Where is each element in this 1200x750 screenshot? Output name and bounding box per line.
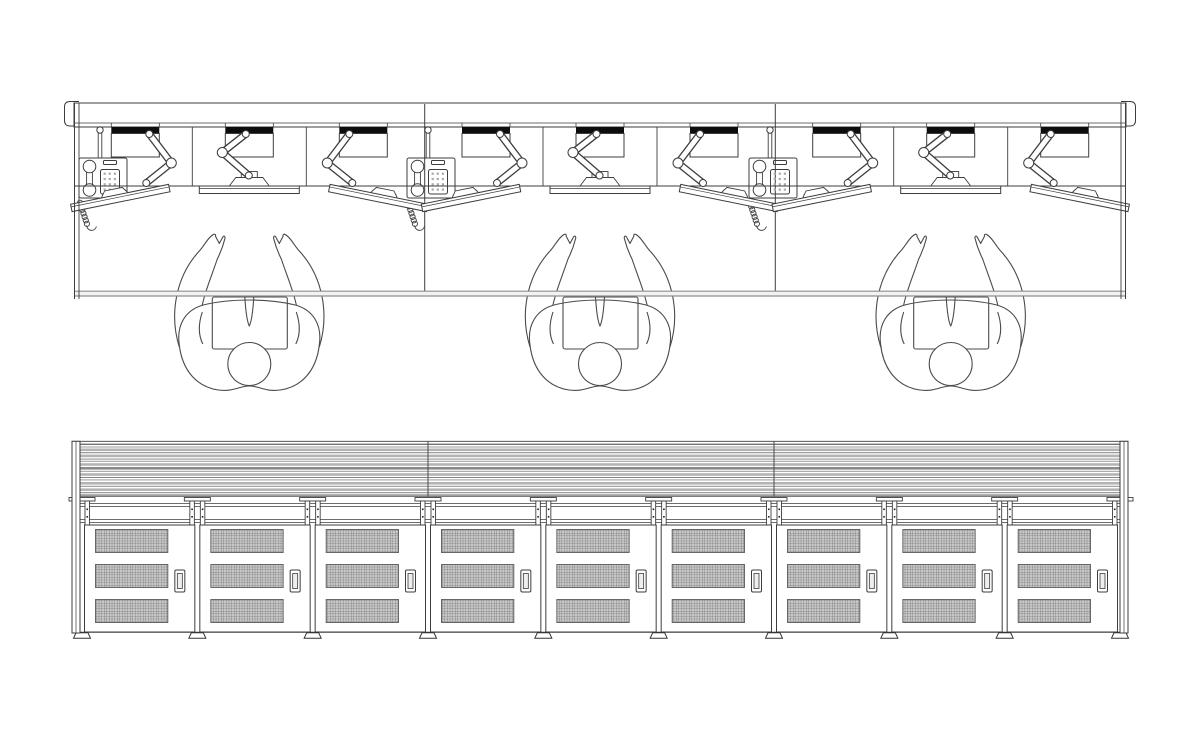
keypad-key xyxy=(784,173,786,175)
keypad-key xyxy=(779,183,781,185)
bracket-post xyxy=(200,501,205,525)
cabinet-door xyxy=(661,525,771,632)
bracket-cap xyxy=(530,498,556,502)
telephone xyxy=(405,127,455,231)
arm-shoulder-joint xyxy=(944,131,951,138)
louver-slat xyxy=(80,477,1120,478)
arm-elbow-joint xyxy=(166,158,176,168)
phone-display-slot xyxy=(104,161,117,165)
monitor-top-view xyxy=(679,178,780,211)
desk-front-edge xyxy=(74,291,1126,296)
vent-grille xyxy=(557,565,629,588)
rail-bracket xyxy=(184,498,210,526)
keypad-key xyxy=(109,183,111,185)
monitor-screen xyxy=(199,186,299,194)
keypad-key xyxy=(432,189,434,191)
vent-grille xyxy=(442,530,514,553)
bracket-screw xyxy=(317,516,319,518)
arm-wrist-joint xyxy=(143,180,150,187)
phone-antenna-tip xyxy=(97,127,103,133)
cabinet-foot xyxy=(996,633,1013,638)
keypad-key xyxy=(437,189,439,191)
arm-shoulder-joint xyxy=(242,131,249,138)
louver-slat xyxy=(80,461,1120,462)
door-handle-slot xyxy=(754,574,759,589)
bracket-screw xyxy=(317,509,319,511)
bracket-screw xyxy=(537,516,539,518)
bracket-post xyxy=(662,501,667,525)
keypad-key xyxy=(109,178,111,180)
keypad-key xyxy=(104,173,106,175)
operator-top-view xyxy=(525,234,674,390)
door-handle-slot xyxy=(408,574,413,589)
cabinet-foot xyxy=(766,633,783,638)
vent-grille xyxy=(672,600,744,623)
louver-slat xyxy=(80,473,1120,476)
bracket-screw xyxy=(191,516,193,518)
cabinet-door xyxy=(892,525,1002,632)
door-handle-slot xyxy=(177,574,182,589)
vent-grille xyxy=(1018,530,1090,553)
louver-panel xyxy=(80,441,1120,496)
bracket-post xyxy=(1113,501,1118,525)
bracket-screw xyxy=(548,516,550,518)
keypad-key xyxy=(437,178,439,180)
keypad-key xyxy=(774,189,776,191)
cabinet-foot xyxy=(304,633,321,638)
bracket-screw xyxy=(653,509,655,511)
bracket-post xyxy=(767,501,772,525)
arm-elbow-joint xyxy=(919,148,929,158)
keypad-key xyxy=(784,189,786,191)
vent-grille xyxy=(788,565,860,588)
bracket-cap xyxy=(992,498,1018,502)
keypad-key xyxy=(437,173,439,175)
vent-grille xyxy=(788,600,860,623)
bracket-post xyxy=(431,501,436,525)
louver-slat xyxy=(80,459,1120,460)
bracket-screw xyxy=(778,516,780,518)
bracket-post xyxy=(190,501,195,525)
louver-slat xyxy=(80,486,1120,487)
bracket-screw xyxy=(768,516,770,518)
vent-grille xyxy=(1018,600,1090,623)
vent-grille xyxy=(96,565,168,588)
vent-grille xyxy=(557,600,629,623)
cabinet-door xyxy=(1007,525,1117,632)
bracket-screw xyxy=(883,509,885,511)
bracket-screw xyxy=(537,509,539,511)
vent-grille xyxy=(672,530,744,553)
bracket-screw xyxy=(548,509,550,511)
bracket-screw xyxy=(422,509,424,511)
keypad-key xyxy=(432,183,434,185)
bracket-screw xyxy=(432,509,434,511)
bracket-screw xyxy=(307,509,309,511)
vent-grille xyxy=(788,530,860,553)
arm-elbow-joint xyxy=(568,148,578,158)
louver-slat xyxy=(80,452,1120,453)
operator-head xyxy=(929,343,972,386)
door-handle-slot xyxy=(869,574,874,589)
rail-bracket xyxy=(530,498,556,526)
bracket-screw xyxy=(778,509,780,511)
monitor-top-view xyxy=(1030,178,1131,211)
vent-grille xyxy=(96,600,168,623)
drawing-page xyxy=(0,0,1200,750)
arm-shoulder-joint xyxy=(346,131,353,138)
bracket-post xyxy=(651,501,656,525)
vent-grille xyxy=(326,530,398,553)
arm-wrist-joint xyxy=(947,172,954,179)
operator-head xyxy=(579,343,622,386)
monitor-station xyxy=(901,123,1001,194)
keypad-key xyxy=(779,178,781,180)
operator-head xyxy=(228,343,271,386)
bracket-screw xyxy=(894,516,896,518)
keypad-key xyxy=(442,178,444,180)
arm-shoulder-joint xyxy=(1047,131,1054,138)
bracket-post xyxy=(997,501,1002,525)
operator-top-view xyxy=(175,234,324,390)
keypad-key xyxy=(442,173,444,175)
console-technical-drawing xyxy=(0,0,1200,750)
vent-grille xyxy=(903,530,975,553)
vent-grille xyxy=(326,600,398,623)
cabinet-door xyxy=(777,525,887,632)
arm-wrist-joint xyxy=(700,180,707,187)
vent-grille xyxy=(211,530,283,553)
louver-slat xyxy=(80,455,1120,458)
arm-elbow-joint xyxy=(322,158,332,168)
keypad-key xyxy=(442,189,444,191)
bracket-screw xyxy=(999,509,1001,511)
keypad-key xyxy=(114,178,116,180)
monitor-station xyxy=(550,123,650,194)
bracket-screw xyxy=(894,509,896,511)
cabinet-door xyxy=(431,525,541,632)
arm-shoulder-joint xyxy=(146,131,153,138)
keypad-key xyxy=(774,178,776,180)
bracket-post xyxy=(85,501,90,525)
vent-grille xyxy=(96,530,168,553)
bracket-post xyxy=(305,501,310,525)
arm-elbow-joint xyxy=(868,158,878,168)
bracket-screw xyxy=(432,516,434,518)
arm-shoulder-joint xyxy=(593,131,600,138)
bracket-screw xyxy=(1009,509,1011,511)
keypad-key xyxy=(779,173,781,175)
arm-shoulder-joint xyxy=(497,131,504,138)
handset-earpiece xyxy=(83,160,96,173)
monitor-station xyxy=(1024,123,1131,212)
keypad-key xyxy=(442,183,444,185)
workstation-module xyxy=(69,123,429,212)
keypad-key xyxy=(104,183,106,185)
bracket-screw xyxy=(768,509,770,511)
cabinet-foot xyxy=(1112,633,1129,638)
bracket-post xyxy=(892,501,897,525)
phone-antenna-tip xyxy=(425,127,431,133)
cabinet-foot xyxy=(74,633,91,638)
bracket-screw xyxy=(999,516,1001,518)
cabinet-door xyxy=(200,525,310,632)
handset-earpiece xyxy=(753,160,766,173)
door-handle-slot xyxy=(639,574,644,589)
cabinet-foot xyxy=(881,633,898,638)
arm-wrist-joint xyxy=(245,172,252,179)
arm-wrist-joint xyxy=(596,172,603,179)
keypad-key xyxy=(779,189,781,191)
monitor-arm xyxy=(568,131,603,180)
bracket-screw xyxy=(307,516,309,518)
monitor-top-view xyxy=(420,178,521,211)
cabinet-foot xyxy=(189,633,206,638)
monitor-screen xyxy=(901,186,1001,194)
bracket-post xyxy=(777,501,782,525)
bracket-screw xyxy=(653,516,655,518)
keypad-key xyxy=(774,183,776,185)
arm-elbow-joint xyxy=(217,148,227,158)
bracket-screw xyxy=(202,509,204,511)
bracket-screw xyxy=(191,509,193,511)
bracket-screw xyxy=(86,509,88,511)
bracket-cap xyxy=(415,498,441,502)
bracket-cap xyxy=(300,498,326,502)
vent-grille xyxy=(442,600,514,623)
monitor-screen xyxy=(550,186,650,194)
vent-grille xyxy=(557,530,629,553)
bracket-cap xyxy=(184,498,210,502)
keypad-key xyxy=(432,173,434,175)
louver-slat xyxy=(80,479,1120,480)
vent-grille xyxy=(442,565,514,588)
vent-grille xyxy=(211,600,283,623)
keypad-key xyxy=(114,183,116,185)
telephone xyxy=(77,127,127,231)
telephone xyxy=(747,127,797,231)
keypad-key xyxy=(774,173,776,175)
door-handle-slot xyxy=(523,574,528,589)
rail-bracket xyxy=(300,498,326,526)
monitor-arm xyxy=(217,131,252,180)
door-handle-slot xyxy=(293,574,298,589)
bracket-screw xyxy=(883,516,885,518)
bracket-screw xyxy=(86,516,88,518)
arm-wrist-joint xyxy=(494,180,501,187)
bracket-screw xyxy=(1114,509,1116,511)
arm-shoulder-joint xyxy=(697,131,704,138)
vent-grille xyxy=(903,600,975,623)
rail-bracket xyxy=(646,498,672,526)
bracket-screw xyxy=(1009,516,1011,518)
bracket-screw xyxy=(663,516,665,518)
bracket-screw xyxy=(663,509,665,511)
bracket-cap xyxy=(876,498,902,502)
bracket-post xyxy=(1008,501,1013,525)
arm-elbow-joint xyxy=(517,158,527,168)
vent-grille xyxy=(326,565,398,588)
bracket-post xyxy=(546,501,551,525)
bracket-screw xyxy=(202,516,204,518)
keypad-key xyxy=(104,178,106,180)
phone-antenna-tip xyxy=(767,127,773,133)
keypad-key xyxy=(784,178,786,180)
arm-wrist-joint xyxy=(844,180,851,187)
louver-slat xyxy=(80,488,1120,491)
vent-grille xyxy=(903,565,975,588)
cabinet-foot xyxy=(535,633,552,638)
monitor-station xyxy=(199,123,299,194)
phone-display-slot xyxy=(432,161,445,165)
workstation-module xyxy=(771,123,1131,212)
cabinet-door xyxy=(546,525,656,632)
cabinet-foot xyxy=(650,633,667,638)
cabinet-door xyxy=(315,525,425,632)
bracket-screw xyxy=(422,516,424,518)
arm-elbow-joint xyxy=(673,158,683,168)
workstation-module xyxy=(420,123,780,212)
keypad-key xyxy=(114,173,116,175)
keypad-key xyxy=(432,178,434,180)
louver-slat xyxy=(80,492,1120,493)
handset-earpiece xyxy=(411,160,424,173)
door-handle-slot xyxy=(1100,574,1105,589)
monitor-arm xyxy=(919,131,954,180)
bracket-post xyxy=(316,501,321,525)
door-handle-slot xyxy=(985,574,990,589)
vent-grille xyxy=(672,565,744,588)
arm-shoulder-joint xyxy=(847,131,854,138)
vent-grille xyxy=(1018,565,1090,588)
louver-slat xyxy=(80,482,1120,485)
keypad-key xyxy=(437,183,439,185)
keypad-key xyxy=(109,173,111,175)
louver-slat xyxy=(80,463,1120,466)
louver-slat xyxy=(80,471,1120,472)
bracket-screw xyxy=(1114,516,1116,518)
cabinet-foot xyxy=(420,633,437,638)
keypad-key xyxy=(784,183,786,185)
bracket-post xyxy=(882,501,887,525)
console-plan-view xyxy=(65,102,1136,391)
bracket-post xyxy=(421,501,426,525)
rail-bracket xyxy=(761,498,787,526)
arm-wrist-joint xyxy=(1050,180,1057,187)
louver-slat xyxy=(80,467,1120,470)
arm-elbow-joint xyxy=(1024,158,1034,168)
operator-top-view xyxy=(876,234,1025,390)
bracket-cap xyxy=(646,498,672,502)
rail-bracket xyxy=(992,498,1018,526)
louver-slat xyxy=(80,447,1120,448)
console-front-elevation xyxy=(69,441,1133,638)
rail-bracket xyxy=(876,498,902,526)
arm-wrist-joint xyxy=(349,180,356,187)
louver-slat xyxy=(80,449,1120,452)
cabinet-door xyxy=(85,525,195,632)
vent-grille xyxy=(211,565,283,588)
bracket-cap xyxy=(761,498,787,502)
rail-bracket xyxy=(415,498,441,526)
bracket-post xyxy=(536,501,541,525)
